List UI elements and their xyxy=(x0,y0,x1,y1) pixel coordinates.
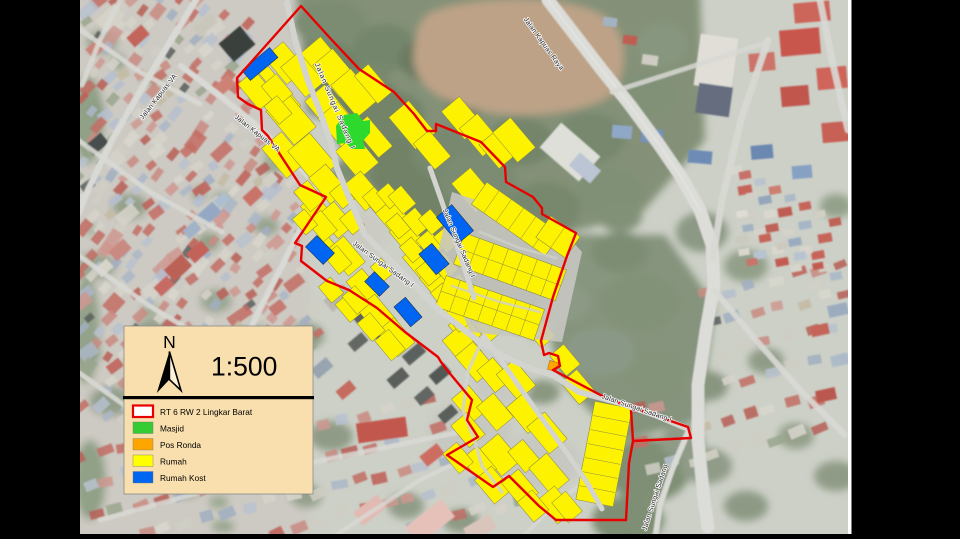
svg-text:N: N xyxy=(163,332,176,352)
svg-text:1:500: 1:500 xyxy=(211,352,277,382)
svg-text:Pos Ronda: Pos Ronda xyxy=(160,440,201,450)
svg-text:Masjid: Masjid xyxy=(160,424,184,434)
svg-text:Rumah Kost: Rumah Kost xyxy=(160,473,206,483)
svg-text:RT 6 RW 2 Lingkar Barat: RT 6 RW 2 Lingkar Barat xyxy=(160,407,253,417)
svg-text:Rumah: Rumah xyxy=(160,457,187,467)
